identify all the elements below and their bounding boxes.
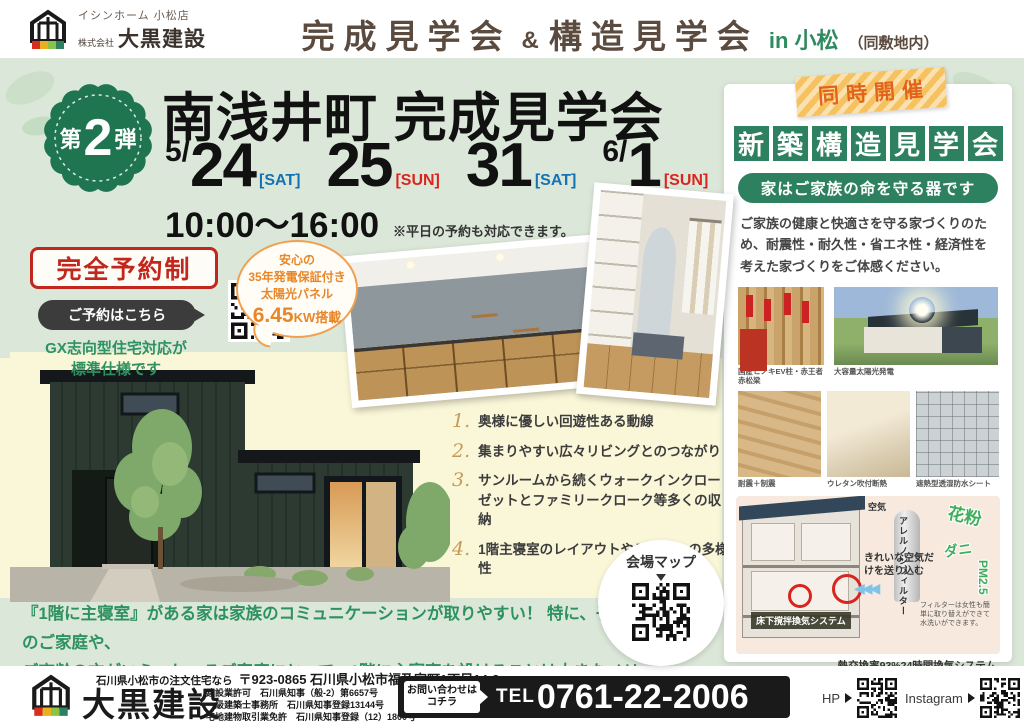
down-arrow-icon bbox=[656, 574, 666, 581]
clean-air-label: きれいな空気だけを送り込む bbox=[864, 552, 934, 578]
photo-solar-house: 大容量太陽光発電 bbox=[834, 287, 998, 385]
photo-framing: 耐震＋制震 bbox=[738, 391, 821, 488]
badge-suffix: 弾 bbox=[114, 122, 136, 154]
company-logo-icon bbox=[26, 9, 70, 51]
solar-panel-bubble: 安心の 35年発電保証付き 太陽光パネル 6.45KW搭載 bbox=[236, 240, 358, 338]
hp-link[interactable]: HP bbox=[822, 678, 897, 718]
footer: 大黒建設 石川県小松市の注文住宅なら 〒923-0865 石川県小松市福乃宮町1… bbox=[0, 666, 1024, 724]
solar-kw-value: 6.45 bbox=[253, 304, 294, 327]
gx-standard-note: GX志向型住宅対応が 標準仕様です bbox=[16, 338, 216, 380]
time-note: ※平日の予約も対応できます。 bbox=[393, 221, 574, 243]
company-name: 大黒建設 bbox=[118, 23, 206, 53]
flyer-page: イシンホーム 小松店 株式会社 大黒建設 完成見学会 & 構造見学会 in 小松… bbox=[0, 0, 1024, 724]
right-arrow-icon bbox=[968, 693, 975, 703]
header-location: in 小松 bbox=[769, 23, 839, 55]
venue-map-label: 会場マップ bbox=[626, 552, 696, 572]
header-title-right: 構造見学会 bbox=[549, 10, 759, 58]
date-item: 25 [SUN] bbox=[326, 140, 439, 193]
footer-logo-icon bbox=[28, 674, 74, 723]
feature-item: 2.集まりやすい広々リビングとのつながり bbox=[452, 442, 730, 462]
structure-tour-title: 新築構造見学会 bbox=[724, 126, 1012, 161]
reserve-here-button[interactable]: ご予約はこちら bbox=[38, 300, 196, 330]
photo-sheet: 遮熱型透湿防水シート bbox=[916, 391, 999, 488]
date-month: 5/ bbox=[165, 137, 190, 167]
reservation-required-label: 完全予約制 bbox=[30, 247, 218, 289]
pollen-label: 花粉 bbox=[946, 499, 984, 531]
date-day: 25 bbox=[326, 140, 391, 193]
hp-qr-code[interactable] bbox=[857, 678, 897, 718]
right-arrow-icon bbox=[845, 693, 852, 703]
header: イシンホーム 小松店 株式会社 大黒建設 完成見学会 & 構造見学会 in 小松… bbox=[0, 0, 1024, 58]
tel-label: TEL bbox=[496, 686, 535, 708]
header-location-note: （同敷地内） bbox=[849, 32, 939, 53]
badge-number: 2 bbox=[84, 112, 113, 164]
date-item: 31 [SAT] bbox=[466, 140, 576, 193]
instagram-qr-code[interactable] bbox=[980, 678, 1020, 718]
time-range: 10:00〜16:00 bbox=[165, 208, 379, 243]
sun-glare bbox=[909, 297, 935, 323]
hp-label: HP bbox=[822, 691, 840, 706]
photo-hinoki-posts: 国産ヒノキEV柱・赤王者赤松梁 bbox=[738, 287, 828, 385]
venue-map-widget: 会場マップ bbox=[598, 540, 724, 666]
ventilation-diagram: 床下撹拌換気システム 空気 アレルノンフィルター 花粉 ダニ PM2.5 きれい… bbox=[736, 496, 1000, 654]
structure-tour-description: ご家族の健康と快適さを守る家づくりのため、耐震性・耐久性・省エネ性・経済性を考え… bbox=[740, 213, 996, 277]
contact-cta: お問い合わせは コチラ bbox=[404, 681, 480, 713]
round-2-badge: 第 2 弾 bbox=[38, 78, 158, 198]
date-item: 5/ 24 [SAT] bbox=[165, 140, 300, 193]
company-prefix: 株式会社 bbox=[78, 36, 114, 49]
event-time: 10:00〜16:00 ※平日の予約も対応できます。 bbox=[165, 208, 574, 243]
footer-tagline: 石川県小松市の注文住宅なら bbox=[96, 673, 233, 688]
venue-map-qr-code[interactable] bbox=[632, 583, 690, 641]
footer-licenses: 建設業許可 石川県知事（般-2）第6657号 一級建築士事務所 石川県知事登録1… bbox=[206, 687, 416, 723]
house-cutaway: 床下撹拌換気システム bbox=[742, 506, 860, 638]
header-ampersand: & bbox=[521, 27, 538, 55]
badge-prefix: 第 bbox=[60, 122, 82, 154]
interior-photo-closet bbox=[576, 182, 734, 405]
store-name: イシンホーム 小松店 bbox=[78, 7, 206, 23]
instagram-label: Instagram bbox=[905, 691, 963, 706]
simultaneous-event-tape: 同時開催 bbox=[795, 67, 947, 117]
instagram-link[interactable]: Instagram bbox=[905, 678, 1020, 718]
airflow-arrows-icon: ◀◀◀ bbox=[854, 580, 877, 597]
brand: イシンホーム 小松店 株式会社 大黒建設 bbox=[26, 7, 206, 53]
header-title-left: 完成見学会 bbox=[301, 10, 511, 58]
event-header-title: 完成見学会 & 構造見学会 in 小松 （同敷地内） bbox=[240, 10, 1000, 58]
photo-insulation: ウレタン吹付断熱 bbox=[827, 391, 910, 488]
date-dow: [SAT] bbox=[535, 170, 576, 192]
structure-tour-subtitle: 家はご家族の命を守る器です bbox=[738, 173, 998, 203]
phone-number: 0761-22-2006 bbox=[537, 678, 749, 717]
pm25-label: PM2.5 bbox=[976, 560, 990, 595]
feature-item: 3.サンルームから続くウォークインクローゼットとファミリークローク等多くの収納 bbox=[452, 471, 730, 530]
date-day: 1 bbox=[627, 140, 659, 193]
date-dow: [SAT] bbox=[259, 170, 300, 192]
structure-photo-grid: 国産ヒノキEV柱・赤王者赤松梁 大容量太陽光発電 耐震＋制震 ウレタン吹付断熱 bbox=[738, 287, 998, 488]
date-day: 31 bbox=[466, 140, 531, 193]
date-day: 24 bbox=[190, 140, 255, 193]
date-dow: [SUN] bbox=[395, 170, 439, 192]
underfloor-system-label: 床下撹拌換気システム bbox=[751, 612, 851, 629]
air-label: 空気 bbox=[868, 500, 886, 513]
date-dow: [SUN] bbox=[664, 170, 708, 192]
filter-note: フィルターは女性も簡単に取り替えができて水洗いができます。 bbox=[920, 601, 994, 628]
mite-label: ダニ bbox=[943, 538, 974, 562]
interior-photo-bedroom bbox=[339, 234, 613, 408]
date-item: 6/ 1 [SUN] bbox=[602, 140, 708, 193]
feature-item: 1.奥様に優しい回遊性ある動線 bbox=[452, 412, 730, 432]
date-month: 6/ bbox=[602, 137, 627, 167]
structure-tour-panel: 同時開催 新築構造見学会 家はご家族の命を守る器です ご家族の健康と快適さを守る… bbox=[724, 84, 1012, 662]
event-dates: 5/ 24 [SAT] 25 [SUN] 31 [SAT] 6/ 1 [SUN] bbox=[165, 140, 728, 193]
phone-bar[interactable]: お問い合わせは コチラ TEL 0761-22-2006 bbox=[398, 676, 790, 718]
